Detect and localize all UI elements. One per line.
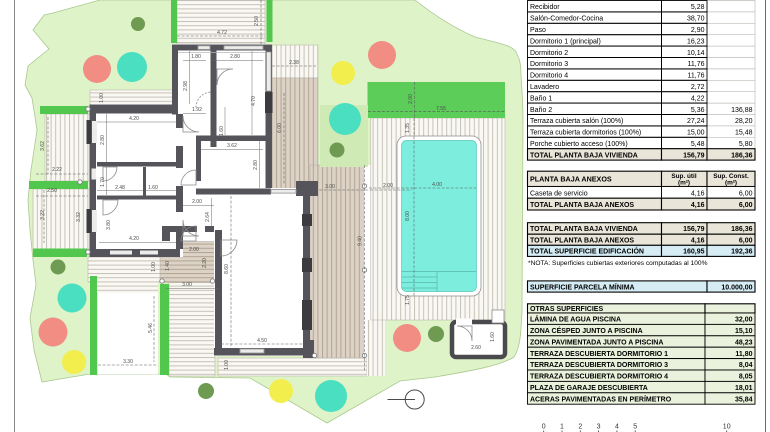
svg-text:2.98: 2.98 [183,81,189,91]
svg-text:15,00: 15,00 [687,130,705,137]
svg-text:2.00: 2.00 [383,183,393,189]
svg-text:1.80: 1.80 [191,54,201,60]
svg-text:2.80: 2.80 [253,160,259,170]
svg-text:156,79: 156,79 [683,152,705,159]
svg-text:TERRAZA DESCUBIERTA DORMITORIO: TERRAZA DESCUBIERTA DORMITORIO 3 [530,362,668,369]
svg-text:TERRAZA DESCUBIERTA DORMITORIO: TERRAZA DESCUBIERTA DORMITORIO 1 [530,351,668,358]
svg-text:8,04: 8,04 [739,362,753,369]
svg-text:1: 1 [560,424,564,431]
svg-text:Terraza cubierta salón (100%): Terraza cubierta salón (100%) [530,118,623,125]
svg-text:156,79: 156,79 [683,226,705,233]
svg-text:4: 4 [615,424,619,431]
svg-text:15,48: 15,48 [735,130,753,137]
svg-text:9.40: 9.40 [358,236,364,246]
svg-text:1.60: 1.60 [148,185,158,191]
svg-text:1.00: 1.00 [151,262,157,272]
svg-text:Dormitorio 1 (principal): Dormitorio 1 (principal) [530,38,601,45]
svg-text:1.70: 1.70 [100,177,106,187]
svg-text:2,72: 2,72 [691,84,705,91]
svg-text:11,76: 11,76 [688,73,705,80]
svg-text:LÁMINA DE AGUA PISCINA: LÁMINA DE AGUA PISCINA [530,315,621,324]
svg-text:8,05: 8,05 [739,374,753,381]
svg-text:10.000,00: 10.000,00 [721,284,752,291]
svg-text:2.80: 2.80 [100,135,106,145]
svg-text:35,84: 35,84 [735,396,753,403]
svg-text:SUPERFICIE PARCELA MÍNIMA: SUPERFICIE PARCELA MÍNIMA [530,282,635,291]
svg-text:5,48: 5,48 [691,141,705,148]
svg-text:1.40: 1.40 [165,261,171,271]
svg-text:Dormitorio 3: Dormitorio 3 [530,61,568,68]
svg-text:32,00: 32,00 [735,317,753,324]
svg-text:5,28: 5,28 [691,4,705,11]
svg-text:10: 10 [723,424,731,431]
svg-text:TOTAL PLANTA BAJA ANEXOS: TOTAL PLANTA BAJA ANEXOS [530,238,634,245]
svg-text:Terraza cubierta dormitorios (: Terraza cubierta dormitorios (100%) [530,130,641,137]
svg-text:28,20: 28,20 [735,118,753,125]
svg-text:ACERAS PAVIMENTADAS EN PERÍMET: ACERAS PAVIMENTADAS EN PERÍMETRO [530,394,672,403]
svg-text:15,10: 15,10 [735,328,753,335]
svg-text:Baño 1: Baño 1 [530,95,552,102]
svg-text:4.70: 4.70 [251,96,257,106]
svg-text:186,36: 186,36 [731,152,753,159]
svg-text:16,23: 16,23 [687,38,705,45]
svg-text:8.00: 8.00 [405,211,411,221]
svg-text:*NOTA: Superficies cubiertas e: *NOTA: Superficies cubiertas exteriores … [528,260,708,267]
svg-text:10,14: 10,14 [687,50,705,57]
svg-text:Dormitorio 4: Dormitorio 4 [530,73,568,80]
svg-text:(m²): (m²) [725,180,737,187]
svg-text:Recibidor: Recibidor [530,4,560,11]
svg-text:4.20: 4.20 [129,236,139,242]
svg-text:2.50: 2.50 [47,188,57,194]
svg-text:TOTAL PLANTA BAJA ANEXOS: TOTAL PLANTA BAJA ANEXOS [530,202,634,209]
svg-text:38,70: 38,70 [687,16,705,23]
svg-text:4.20: 4.20 [129,116,139,122]
svg-text:2.48: 2.48 [115,185,125,191]
svg-text:TOTAL PLANTA BAJA VIVIENDA: TOTAL PLANTA BAJA VIVIENDA [530,152,638,159]
svg-text:1.35: 1.35 [405,123,411,133]
svg-text:4.72: 4.72 [217,30,227,36]
svg-text:3.00: 3.00 [325,184,335,190]
svg-text:4,16: 4,16 [691,202,705,209]
svg-text:1.00: 1.00 [224,360,230,370]
svg-text:1.60: 1.60 [219,126,225,136]
svg-text:Lavadero: Lavadero [530,84,559,91]
svg-text:3: 3 [597,424,601,431]
svg-text:4,16: 4,16 [691,190,705,197]
svg-text:11,76: 11,76 [688,61,705,68]
svg-text:18,01: 18,01 [735,385,753,392]
svg-text:2.38: 2.38 [289,60,299,66]
svg-text:6,00: 6,00 [739,190,753,197]
svg-text:OTRAS SUPERFICIES: OTRAS SUPERFICIES [530,306,603,313]
svg-text:2.22: 2.22 [52,167,62,173]
svg-text:2.60: 2.60 [471,345,481,351]
svg-text:136,88: 136,88 [731,107,753,114]
svg-text:4.00: 4.00 [432,182,442,188]
svg-text:3.00: 3.00 [182,282,192,288]
svg-text:1.60: 1.60 [490,332,496,342]
svg-text:5,80: 5,80 [739,141,753,148]
svg-text:8.60: 8.60 [224,264,230,274]
svg-text:2.20: 2.20 [202,258,208,268]
svg-text:ZONA PAVIMENTADA JUNTO A PISCI: ZONA PAVIMENTADA JUNTO A PISCINA [530,339,663,346]
svg-text:5,36: 5,36 [691,107,705,114]
svg-text:6.00: 6.00 [277,123,283,133]
svg-text:2.80: 2.80 [230,54,240,60]
svg-text:5.46: 5.46 [148,323,154,333]
svg-text:PLAZA DE GARAJE DESCUBIERTA: PLAZA DE GARAJE DESCUBIERTA [530,385,648,392]
svg-text:Salón-Comedor-Cocina: Salón-Comedor-Cocina [530,16,603,23]
svg-text:1.75: 1.75 [405,295,411,305]
svg-text:4,16: 4,16 [691,238,705,245]
svg-text:192,36: 192,36 [731,249,753,256]
svg-text:2.50: 2.50 [254,16,260,26]
svg-text:2.00: 2.00 [192,199,202,205]
svg-text:2,90: 2,90 [691,27,705,34]
svg-text:(m²): (m²) [678,180,690,187]
svg-text:4,22: 4,22 [691,95,705,102]
svg-text:Paso: Paso [530,27,546,34]
svg-text:PLANTA BAJA ANEXOS: PLANTA BAJA ANEXOS [530,175,612,184]
svg-text:3.62: 3.62 [227,143,237,149]
svg-text:186,36: 186,36 [731,226,753,233]
svg-text:3.32: 3.32 [76,212,82,222]
svg-text:TERRAZA DESCUBIERTA DORMITORIO: TERRAZA DESCUBIERTA DORMITORIO 4 [530,374,668,381]
svg-text:1.00: 1.00 [99,93,105,103]
svg-text:Baño 2: Baño 2 [530,107,552,114]
svg-text:2.00: 2.00 [408,94,414,104]
svg-text:3.22: 3.22 [40,210,46,220]
svg-text:Caseta de servicio: Caseta de servicio [530,190,588,197]
svg-text:11,80: 11,80 [735,351,752,358]
svg-text:Porche cubierto acceso (100%): Porche cubierto acceso (100%) [530,141,628,148]
svg-text:3.30: 3.30 [123,359,133,365]
svg-text:TOTAL SUPERFICIE EDIFICACIÓN: TOTAL SUPERFICIE EDIFICACIÓN [530,247,644,256]
svg-text:3.62: 3.62 [40,141,46,151]
svg-text:ZONA CÉSPED JUNTO A PISCINA: ZONA CÉSPED JUNTO A PISCINA [530,326,643,335]
svg-text:6,00: 6,00 [739,202,753,209]
svg-text:2.00: 2.00 [189,247,199,253]
svg-text:27,24: 27,24 [687,118,705,125]
svg-text:1.92: 1.92 [192,107,202,113]
svg-text:3.80: 3.80 [106,220,112,230]
svg-text:TOTAL PLANTA BAJA VIVIENDA: TOTAL PLANTA BAJA VIVIENDA [530,226,638,233]
svg-text:7.55: 7.55 [436,106,446,112]
svg-text:2: 2 [578,424,582,431]
svg-text:48,23: 48,23 [735,339,753,346]
svg-text:0: 0 [542,424,546,431]
svg-text:Dormitorio 2: Dormitorio 2 [530,50,568,57]
svg-text:4.50: 4.50 [257,338,267,344]
svg-text:160,95: 160,95 [683,249,705,256]
svg-text:5: 5 [633,424,637,431]
svg-text:6,00: 6,00 [739,238,753,245]
svg-text:2.64: 2.64 [205,212,211,222]
